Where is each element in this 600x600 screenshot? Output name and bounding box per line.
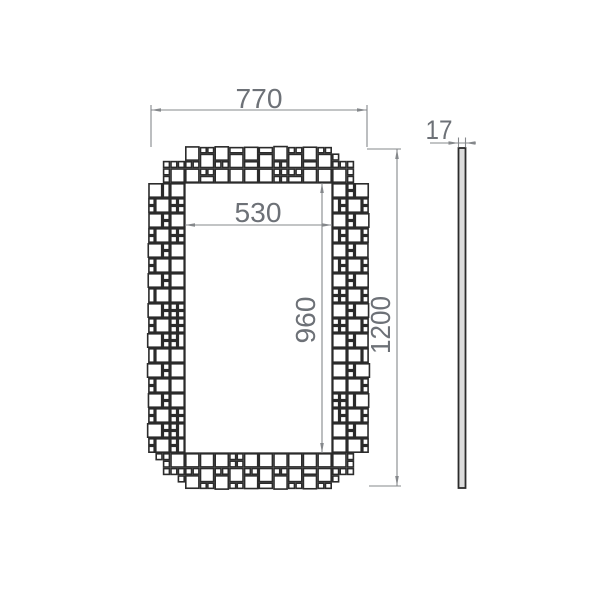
mosaic-tile bbox=[363, 266, 368, 272]
mosaic-tile bbox=[289, 469, 302, 482]
mosaic-tile bbox=[333, 469, 339, 475]
mosaic-tile bbox=[171, 424, 177, 430]
mosaic-tile bbox=[318, 154, 331, 167]
mosaic-tile bbox=[363, 446, 368, 452]
mosaic-tile bbox=[333, 334, 346, 347]
mosaic-tile bbox=[178, 439, 184, 452]
mosaic-tile bbox=[281, 176, 287, 182]
mosaic-tile bbox=[363, 439, 368, 445]
mosaic-tile bbox=[340, 401, 346, 407]
mosaic-tile bbox=[230, 461, 236, 467]
mosaic-tile bbox=[340, 394, 346, 400]
mosaic-tile bbox=[274, 469, 280, 475]
dim-outer-height: 1200 bbox=[365, 149, 401, 486]
mosaic-tile bbox=[259, 454, 272, 467]
mosaic-tile bbox=[348, 371, 354, 377]
mosaic-tile bbox=[171, 206, 177, 212]
mosaic-tile bbox=[178, 199, 184, 205]
mosaic-tile bbox=[178, 319, 184, 325]
mosaic-tile bbox=[163, 274, 169, 280]
mosaic-tile bbox=[274, 454, 287, 467]
mosaic-tile bbox=[348, 162, 354, 168]
mosaic-tile bbox=[245, 162, 258, 168]
mosaic-tile bbox=[340, 162, 346, 168]
mosaic-tile bbox=[325, 148, 331, 153]
mosaic-tile bbox=[171, 341, 177, 347]
dim-thickness-label: 17 bbox=[426, 115, 453, 145]
mosaic-tile bbox=[171, 349, 184, 362]
mosaic-tile bbox=[340, 319, 346, 325]
mosaic-tile bbox=[171, 169, 184, 182]
mosaic-tile bbox=[355, 424, 368, 437]
mosaic-tile bbox=[318, 454, 331, 467]
mosaic-tile bbox=[363, 206, 368, 212]
mosaic-tile bbox=[163, 251, 169, 257]
mosaic-tile bbox=[156, 319, 169, 332]
mosaic-tile bbox=[178, 311, 184, 317]
mosaic-tile bbox=[348, 251, 354, 257]
mosaic-tile bbox=[148, 364, 162, 377]
mosaic-tile bbox=[281, 469, 287, 475]
mosaic-tile bbox=[156, 259, 169, 272]
mosaic-tile bbox=[363, 386, 368, 392]
dim-outer-width: 770 bbox=[151, 83, 367, 147]
mosaic-tile bbox=[171, 364, 184, 377]
mosaic-tile bbox=[303, 454, 316, 467]
mosaic-tile bbox=[296, 483, 302, 488]
mosaic-tile bbox=[148, 274, 161, 287]
mosaic-tile bbox=[171, 416, 177, 422]
arrow-left-icon bbox=[466, 141, 476, 145]
mosaic-tile bbox=[348, 214, 354, 220]
mosaic-tile bbox=[178, 334, 184, 347]
mosaic-tile bbox=[230, 169, 243, 182]
mosaic-tile bbox=[164, 454, 170, 460]
mosaic-tile bbox=[208, 148, 214, 153]
mosaic-tile bbox=[289, 454, 302, 467]
mosaic-tile bbox=[163, 334, 169, 340]
mosaic-tile bbox=[163, 281, 169, 287]
mosaic-tile bbox=[348, 334, 354, 340]
mosaic-tile bbox=[186, 147, 199, 160]
mosaic-tile bbox=[259, 169, 272, 182]
arrow-up-icon bbox=[395, 149, 399, 159]
mosaic-tile bbox=[340, 266, 346, 272]
mosaic-tile bbox=[348, 469, 354, 475]
mosaic-tile bbox=[171, 409, 177, 415]
mosaic-tile bbox=[303, 476, 316, 489]
mosaic-tile bbox=[348, 169, 354, 175]
mosaic-tile bbox=[208, 169, 214, 175]
mosaic-tile bbox=[333, 162, 339, 168]
mosaic-tile bbox=[171, 469, 177, 475]
mosaic-tile bbox=[156, 379, 169, 392]
mosaic-tile bbox=[333, 326, 339, 332]
mosaic-tile bbox=[274, 176, 280, 182]
mosaic-tile bbox=[355, 364, 369, 377]
mosaic-tile bbox=[333, 169, 346, 182]
mosaic-tile bbox=[348, 311, 354, 317]
mosaic-tile bbox=[223, 162, 229, 168]
mosaic-tile bbox=[178, 409, 184, 415]
mosaic-tile bbox=[340, 416, 346, 422]
mosaic-tile bbox=[281, 162, 287, 168]
mosaic-tile bbox=[281, 169, 287, 175]
mosaic-tile bbox=[171, 236, 177, 242]
side-profile-bar bbox=[459, 148, 466, 488]
mosaic-tile bbox=[333, 229, 339, 242]
mosaic-tile bbox=[201, 469, 214, 482]
mosaic-tile bbox=[171, 259, 184, 272]
mosaic-tile bbox=[318, 169, 331, 182]
mosaic-tile bbox=[178, 326, 184, 332]
mosaic-tile bbox=[340, 229, 346, 235]
dim-outer-width-label: 770 bbox=[236, 83, 283, 114]
mosaic-tile bbox=[163, 341, 169, 347]
mosaic-tile bbox=[164, 176, 170, 182]
mosaic-tile bbox=[164, 169, 170, 175]
mosaic-tile bbox=[148, 304, 162, 317]
mosaic-tile bbox=[171, 289, 184, 302]
mosaic-tile bbox=[348, 341, 354, 347]
mosaic-tile bbox=[215, 454, 228, 467]
mosaic-tile bbox=[340, 289, 346, 295]
mosaic-tile bbox=[348, 454, 354, 460]
mosaic-tile bbox=[363, 236, 368, 242]
mosaic-tile bbox=[318, 148, 324, 153]
mosaic-tile bbox=[178, 236, 184, 242]
mosaic-tile bbox=[149, 259, 154, 265]
mosaic-tile bbox=[348, 431, 354, 437]
mosaic-tile bbox=[333, 319, 339, 325]
mosaic-tile bbox=[223, 469, 229, 475]
mosaic-tile bbox=[230, 483, 236, 488]
mosaic-tile bbox=[163, 401, 169, 407]
mosaic-tile bbox=[164, 469, 170, 475]
mosaic-tile bbox=[163, 184, 169, 197]
mosaic-tile bbox=[149, 446, 154, 452]
mosaic-tile bbox=[325, 483, 331, 488]
mosaic-tile bbox=[178, 304, 184, 310]
mosaic-tile bbox=[171, 162, 177, 168]
mosaic-tile bbox=[333, 424, 346, 437]
mosaic-tile bbox=[296, 148, 302, 153]
dim-inner-width-label: 530 bbox=[235, 197, 282, 228]
drawing-canvas: 770 530 960 1200 bbox=[0, 0, 600, 600]
mosaic-tile bbox=[156, 409, 169, 422]
mosaic-tile bbox=[149, 266, 154, 272]
mosaic-tile bbox=[318, 483, 324, 488]
mosaic-tile bbox=[215, 469, 221, 475]
mosaic-tile bbox=[340, 259, 346, 265]
mosaic-tile bbox=[178, 469, 184, 475]
mosaic-tile bbox=[171, 446, 177, 452]
mosaic-tile bbox=[333, 199, 339, 212]
mosaic-tile bbox=[340, 469, 346, 475]
mosaic-tile bbox=[348, 221, 354, 227]
mosaic-tile bbox=[193, 469, 199, 475]
mosaic-tile bbox=[171, 379, 184, 392]
mosaic-tile bbox=[274, 162, 280, 168]
mosaic-tile bbox=[148, 334, 162, 347]
mosaic-tile bbox=[201, 483, 207, 488]
mosaic-tile bbox=[348, 184, 354, 190]
mosaic-tile bbox=[178, 476, 184, 482]
mosaic-tile bbox=[149, 386, 154, 392]
mosaic-tile bbox=[245, 169, 258, 182]
mosaic-tile bbox=[355, 394, 368, 407]
mosaic-tile bbox=[355, 184, 368, 197]
mosaic-tile bbox=[355, 214, 369, 227]
mosaic-tile bbox=[171, 439, 177, 445]
mosaic-tile bbox=[318, 469, 331, 482]
mosaic-tile bbox=[171, 311, 177, 317]
mosaic-tile bbox=[215, 169, 228, 182]
mosaic-tile bbox=[289, 154, 302, 167]
mosaic-tile bbox=[333, 409, 339, 422]
mosaic-tile bbox=[149, 236, 154, 242]
mosaic-tile bbox=[201, 169, 207, 175]
mosaic-tile bbox=[148, 244, 161, 257]
mosaic-tile bbox=[289, 169, 295, 175]
mosaic-tile bbox=[333, 394, 339, 400]
mosaic-tile bbox=[178, 162, 184, 168]
mosaic-tile bbox=[171, 214, 184, 227]
mosaic-tile bbox=[149, 289, 154, 302]
mosaic-tile bbox=[164, 461, 170, 467]
mosaic-tile bbox=[156, 229, 169, 242]
mosaic-tile bbox=[201, 176, 214, 182]
mosaic-tile bbox=[163, 244, 169, 250]
mosaic-tile bbox=[333, 296, 339, 302]
mosaic-tile bbox=[363, 229, 368, 235]
mosaic-tile bbox=[259, 483, 272, 488]
mosaic-tile bbox=[186, 476, 199, 488]
mosaic-tile bbox=[363, 416, 368, 422]
mosaic-tile bbox=[171, 334, 177, 340]
mosaic-tile bbox=[178, 229, 184, 235]
mosaic-tile bbox=[186, 469, 192, 475]
mosaic-tile bbox=[363, 379, 368, 385]
mosaic-tile bbox=[259, 469, 272, 482]
mosaic-tile bbox=[348, 259, 361, 272]
mosaic-tile bbox=[149, 439, 154, 445]
mosaic-tile bbox=[171, 326, 177, 332]
mosaic-tile bbox=[201, 148, 207, 153]
mosaic-tile bbox=[163, 431, 169, 437]
mosaic-tile bbox=[237, 461, 243, 467]
mosaic-tile bbox=[303, 147, 316, 160]
mosaic-tile bbox=[340, 199, 346, 205]
mosaic-tile bbox=[363, 289, 368, 295]
arrow-left-icon bbox=[151, 108, 161, 112]
mosaic-tile bbox=[171, 184, 184, 197]
mosaic-tile bbox=[333, 349, 346, 362]
mosaic-tile bbox=[363, 199, 368, 205]
mosaic-tile bbox=[156, 454, 162, 460]
mosaic-tile bbox=[186, 169, 199, 182]
arrow-down-icon bbox=[395, 476, 399, 486]
mosaic-tile bbox=[171, 431, 177, 437]
arrow-right-icon bbox=[357, 108, 367, 112]
mosaic-tile bbox=[363, 409, 368, 415]
mosaic-tile bbox=[303, 162, 316, 168]
mosaic-tile bbox=[171, 229, 177, 235]
mosaic-tile bbox=[149, 416, 154, 422]
mosaic-tile bbox=[230, 454, 236, 460]
mosaic-tile bbox=[230, 148, 243, 153]
mosaic-tile bbox=[340, 326, 346, 332]
mosaic-tile bbox=[163, 304, 169, 310]
mosaic-tile bbox=[163, 364, 169, 370]
dim-inner-height-label: 960 bbox=[290, 297, 321, 344]
mosaic-tile bbox=[274, 147, 287, 161]
mosaic-tile bbox=[186, 162, 192, 168]
mosaic-tile bbox=[333, 454, 346, 467]
mosaic-tile bbox=[333, 244, 346, 257]
mosaic-tile bbox=[245, 469, 251, 475]
mosaic-tile bbox=[149, 184, 162, 197]
mosaic-tile bbox=[149, 319, 154, 325]
mosaic-tile bbox=[340, 206, 346, 212]
mosaic-tile bbox=[333, 476, 339, 482]
mosaic-tile bbox=[149, 229, 154, 235]
mosaic-tile bbox=[348, 394, 354, 407]
mosaic-tile bbox=[178, 206, 184, 212]
mosaic-tile bbox=[348, 229, 361, 242]
mosaic-tile bbox=[149, 349, 154, 362]
mosaic-tile bbox=[237, 483, 243, 488]
mosaic-tile bbox=[201, 454, 214, 467]
mosaic-tile bbox=[333, 154, 339, 160]
mosaic-tile bbox=[149, 199, 154, 205]
mosaic-tile bbox=[215, 162, 221, 168]
mosaic-tile bbox=[348, 409, 361, 422]
mosaic-tile bbox=[355, 274, 368, 287]
mosaic-tile bbox=[245, 476, 258, 489]
mosaic-tile bbox=[171, 199, 177, 205]
mosaic-tile bbox=[348, 274, 354, 280]
mosaic-tile bbox=[149, 326, 154, 332]
mosaic-tile bbox=[340, 296, 346, 302]
mosaic-tile bbox=[245, 454, 258, 467]
mosaic-tile bbox=[348, 289, 361, 302]
mosaic-tile bbox=[171, 454, 184, 467]
mosaic-tile bbox=[171, 319, 177, 325]
mosaic-tile bbox=[333, 184, 346, 197]
mosaic-tile bbox=[348, 304, 354, 310]
technical-drawing: 770 530 960 1200 bbox=[0, 0, 600, 600]
mosaic-tile bbox=[348, 199, 361, 212]
mosaic-tile bbox=[348, 244, 354, 250]
mosaic-tile bbox=[163, 394, 169, 400]
mosaic-tile bbox=[340, 236, 346, 242]
mosaic-tile bbox=[348, 349, 361, 362]
mosaic-tile bbox=[163, 221, 169, 227]
mosaic-tile bbox=[156, 199, 169, 212]
mosaic-tile bbox=[355, 244, 368, 257]
mosaic-tile bbox=[230, 154, 243, 167]
mosaic-tile bbox=[348, 281, 354, 287]
mosaic-tile bbox=[245, 147, 258, 160]
mosaic-tile bbox=[348, 379, 361, 392]
mosaic-tile bbox=[149, 409, 154, 415]
mosaic-tile bbox=[348, 439, 361, 452]
mosaic-tile bbox=[163, 424, 169, 430]
dim-thickness: 17 bbox=[426, 115, 477, 148]
mosaic-tile bbox=[171, 274, 184, 287]
mosaic-tile bbox=[348, 424, 354, 430]
mosaic-tile bbox=[149, 379, 154, 385]
mosaic-tile bbox=[333, 439, 346, 452]
mosaic-tile bbox=[303, 169, 316, 182]
mosaic-tile bbox=[333, 274, 346, 287]
mosaic-tile bbox=[178, 424, 184, 437]
mosaic-tile bbox=[348, 176, 354, 182]
mosaic-tile bbox=[348, 319, 361, 332]
mosaic-tile bbox=[333, 214, 346, 227]
mosaic-tile bbox=[333, 259, 339, 272]
mosaic-tile bbox=[186, 454, 199, 467]
mosaic-tile bbox=[163, 214, 169, 220]
mosaic-tile bbox=[289, 176, 302, 182]
mosaic-tile bbox=[289, 148, 295, 153]
mosaic-tile bbox=[215, 147, 228, 160]
mosaic-tile bbox=[259, 148, 272, 153]
mosaic-tile bbox=[333, 304, 346, 317]
mosaic-tile bbox=[348, 461, 354, 467]
mosaic-tile bbox=[252, 469, 258, 475]
mosaic-tile bbox=[333, 289, 339, 295]
mosaic-tile bbox=[208, 483, 214, 488]
mosaic-tile bbox=[230, 469, 243, 482]
mosaic-tile bbox=[363, 259, 368, 265]
mosaic-tile bbox=[274, 476, 287, 489]
side-view: 17 bbox=[426, 115, 477, 488]
mosaic-tile bbox=[193, 162, 199, 168]
mosaic-tile bbox=[148, 424, 162, 437]
mosaic-tile bbox=[156, 289, 169, 302]
mosaic-tile bbox=[156, 439, 169, 452]
mosaic-tile bbox=[156, 349, 169, 362]
mosaic-tile bbox=[237, 454, 243, 460]
mosaic-tile bbox=[289, 483, 295, 488]
mosaic-tile bbox=[259, 154, 272, 167]
mosaic-tile bbox=[201, 154, 214, 167]
mosaic-tile bbox=[171, 244, 184, 257]
front-view: 770 530 960 1200 bbox=[148, 83, 401, 489]
mosaic-tile bbox=[148, 394, 161, 407]
mosaic-tile bbox=[163, 371, 169, 377]
mosaic-tile bbox=[149, 206, 154, 212]
mosaic-tile bbox=[149, 214, 162, 227]
mosaic-tile bbox=[348, 191, 354, 197]
mosaic-tile bbox=[303, 469, 316, 475]
mosaic-tile bbox=[163, 311, 169, 317]
mosaic-tile bbox=[333, 401, 339, 407]
mosaic-tile bbox=[296, 169, 302, 175]
mosaic-tile bbox=[333, 364, 346, 377]
mosaic-tile bbox=[274, 169, 280, 175]
mosaic-tile bbox=[340, 409, 346, 415]
mosaic-tile bbox=[171, 304, 177, 310]
dim-outer-height-label: 1200 bbox=[365, 296, 396, 354]
mosaic-tile bbox=[171, 394, 184, 407]
mosaic-tile bbox=[333, 379, 346, 392]
mosaic-tile bbox=[164, 162, 170, 168]
mosaic-tile bbox=[348, 364, 354, 370]
mosaic-tile bbox=[178, 416, 184, 422]
